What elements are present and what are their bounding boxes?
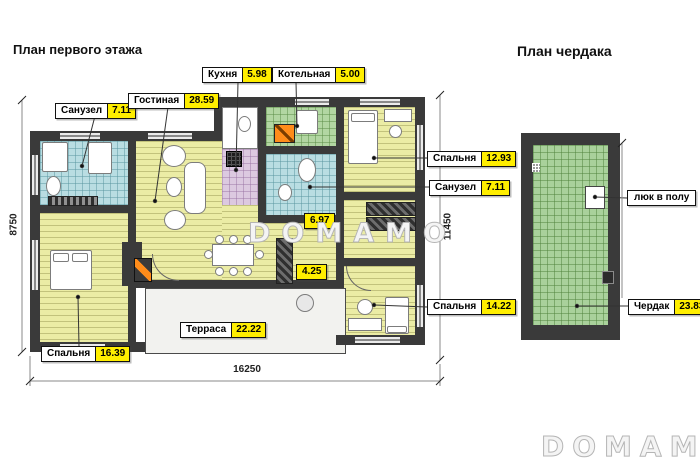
floor-hatch-icon <box>585 186 605 209</box>
room-label-area: 14.22 <box>481 300 515 314</box>
room-label-area: 16.39 <box>95 347 129 361</box>
wardrobe-icon <box>366 202 416 216</box>
wall-segment <box>30 131 222 141</box>
room-label-name: Спальня <box>428 152 481 166</box>
label-floor-hatch: люк в полу <box>627 190 696 206</box>
armchair-icon <box>162 145 186 167</box>
fireplace-icon <box>134 258 152 282</box>
room-label-bedroom-right: Спальня 14.22 <box>427 299 516 315</box>
wall-segment <box>40 205 128 213</box>
attic-title: План чердака <box>517 43 612 59</box>
room-label-bathroom-right: Санузел 7.11 <box>429 180 510 196</box>
attic-floor <box>533 145 608 325</box>
room-label-bathroom-left: Санузел 7.11 <box>55 103 136 119</box>
pillow-icon <box>351 113 375 122</box>
room-label-area: 4.25 <box>297 265 326 279</box>
chair-icon <box>357 299 373 315</box>
chair-icon <box>389 125 402 138</box>
first-floor-title: План первого этажа <box>13 42 142 57</box>
chair-icon <box>229 235 238 244</box>
desk-icon <box>348 318 382 331</box>
dimension-bottom: 16250 <box>217 364 277 375</box>
room-label-boiler: Котельная 5.00 <box>272 67 365 83</box>
washing-machine-icon <box>296 110 318 134</box>
window-icon <box>360 99 400 105</box>
vent-icon <box>532 163 540 172</box>
room-label-area: 5.00 <box>335 68 363 82</box>
window-icon <box>32 240 38 290</box>
room-label-bedroom-top: Спальня 12.93 <box>427 151 516 167</box>
dimension-left: 8750 <box>9 197 20 253</box>
room-label-bedroom-left: Спальня 16.39 <box>41 346 130 362</box>
toilet-icon <box>278 184 292 201</box>
kitchen-sink-icon <box>238 116 251 132</box>
room-label-area: 12.93 <box>481 152 515 166</box>
room-label-attic: Чердак 23.83 <box>628 299 700 315</box>
room-label-kitchen: Кухня 5.98 <box>202 67 272 83</box>
room-label-name: Чердак <box>629 300 674 314</box>
room-label-name: Санузел <box>56 104 107 118</box>
room-label-area: 22.22 <box>231 323 265 337</box>
armchair-icon <box>164 210 186 230</box>
pillow-icon <box>53 253 69 262</box>
window-icon <box>417 285 423 327</box>
wall-segment <box>258 107 266 223</box>
room-label-name: Спальня <box>428 300 481 314</box>
wall-segment <box>344 192 415 200</box>
window-icon <box>355 337 400 343</box>
pillow-icon <box>387 326 407 333</box>
wall-segment <box>128 141 136 213</box>
stove-icon <box>226 151 242 167</box>
floor-plan-page: План первого этажа План чердака <box>0 0 700 467</box>
room-label-area: 5.98 <box>242 68 270 82</box>
chair-icon <box>229 267 238 276</box>
watermark-corner: DOMAMO <box>541 430 700 463</box>
room-label-name: Кухня <box>203 68 242 82</box>
desk-icon <box>384 109 412 122</box>
room-label-name: Санузел <box>430 181 481 195</box>
washer-icon <box>88 142 112 174</box>
boiler-panel-icon <box>274 124 295 143</box>
room-label-name: Терраса <box>181 323 231 337</box>
room-label-area: 7.11 <box>481 181 509 195</box>
chair-icon <box>215 235 224 244</box>
room-label-terrace: Терраса 22.22 <box>180 322 266 338</box>
window-icon <box>60 133 100 139</box>
chair-icon <box>243 267 252 276</box>
window-icon <box>295 99 329 105</box>
pedestal-sink-icon <box>298 158 316 182</box>
wall-segment <box>128 280 344 288</box>
chair-icon <box>255 250 264 259</box>
room-label-area: 28.59 <box>184 94 218 108</box>
wall-segment <box>344 258 415 266</box>
wall-segment <box>266 146 336 154</box>
window-icon <box>148 133 192 139</box>
watermark-center: DOMAMO <box>248 218 457 249</box>
room-label-livingroom: Гостиная 28.59 <box>128 93 219 109</box>
wall-segment <box>336 107 344 288</box>
coffee-table-icon <box>166 177 182 197</box>
chimney-icon <box>602 271 614 284</box>
room-label-area: 23.83 <box>674 300 700 314</box>
pillow-icon <box>72 253 88 262</box>
room-label-name: Котельная <box>273 68 335 82</box>
window-icon <box>417 125 423 170</box>
room-label-name: Гостиная <box>129 94 184 108</box>
window-icon <box>32 155 38 195</box>
toilet-icon <box>46 176 61 196</box>
chair-icon <box>215 267 224 276</box>
chair-icon <box>204 250 213 259</box>
room-label-name: Спальня <box>42 347 95 361</box>
terrace-floor <box>145 288 346 354</box>
radiator-icon <box>48 196 98 206</box>
room-label-corridor: 4.25 <box>296 264 327 280</box>
label-text: люк в полу <box>628 191 695 205</box>
sofa-icon <box>184 162 206 214</box>
sink-vanity-icon <box>42 142 68 172</box>
grill-icon <box>296 294 314 312</box>
